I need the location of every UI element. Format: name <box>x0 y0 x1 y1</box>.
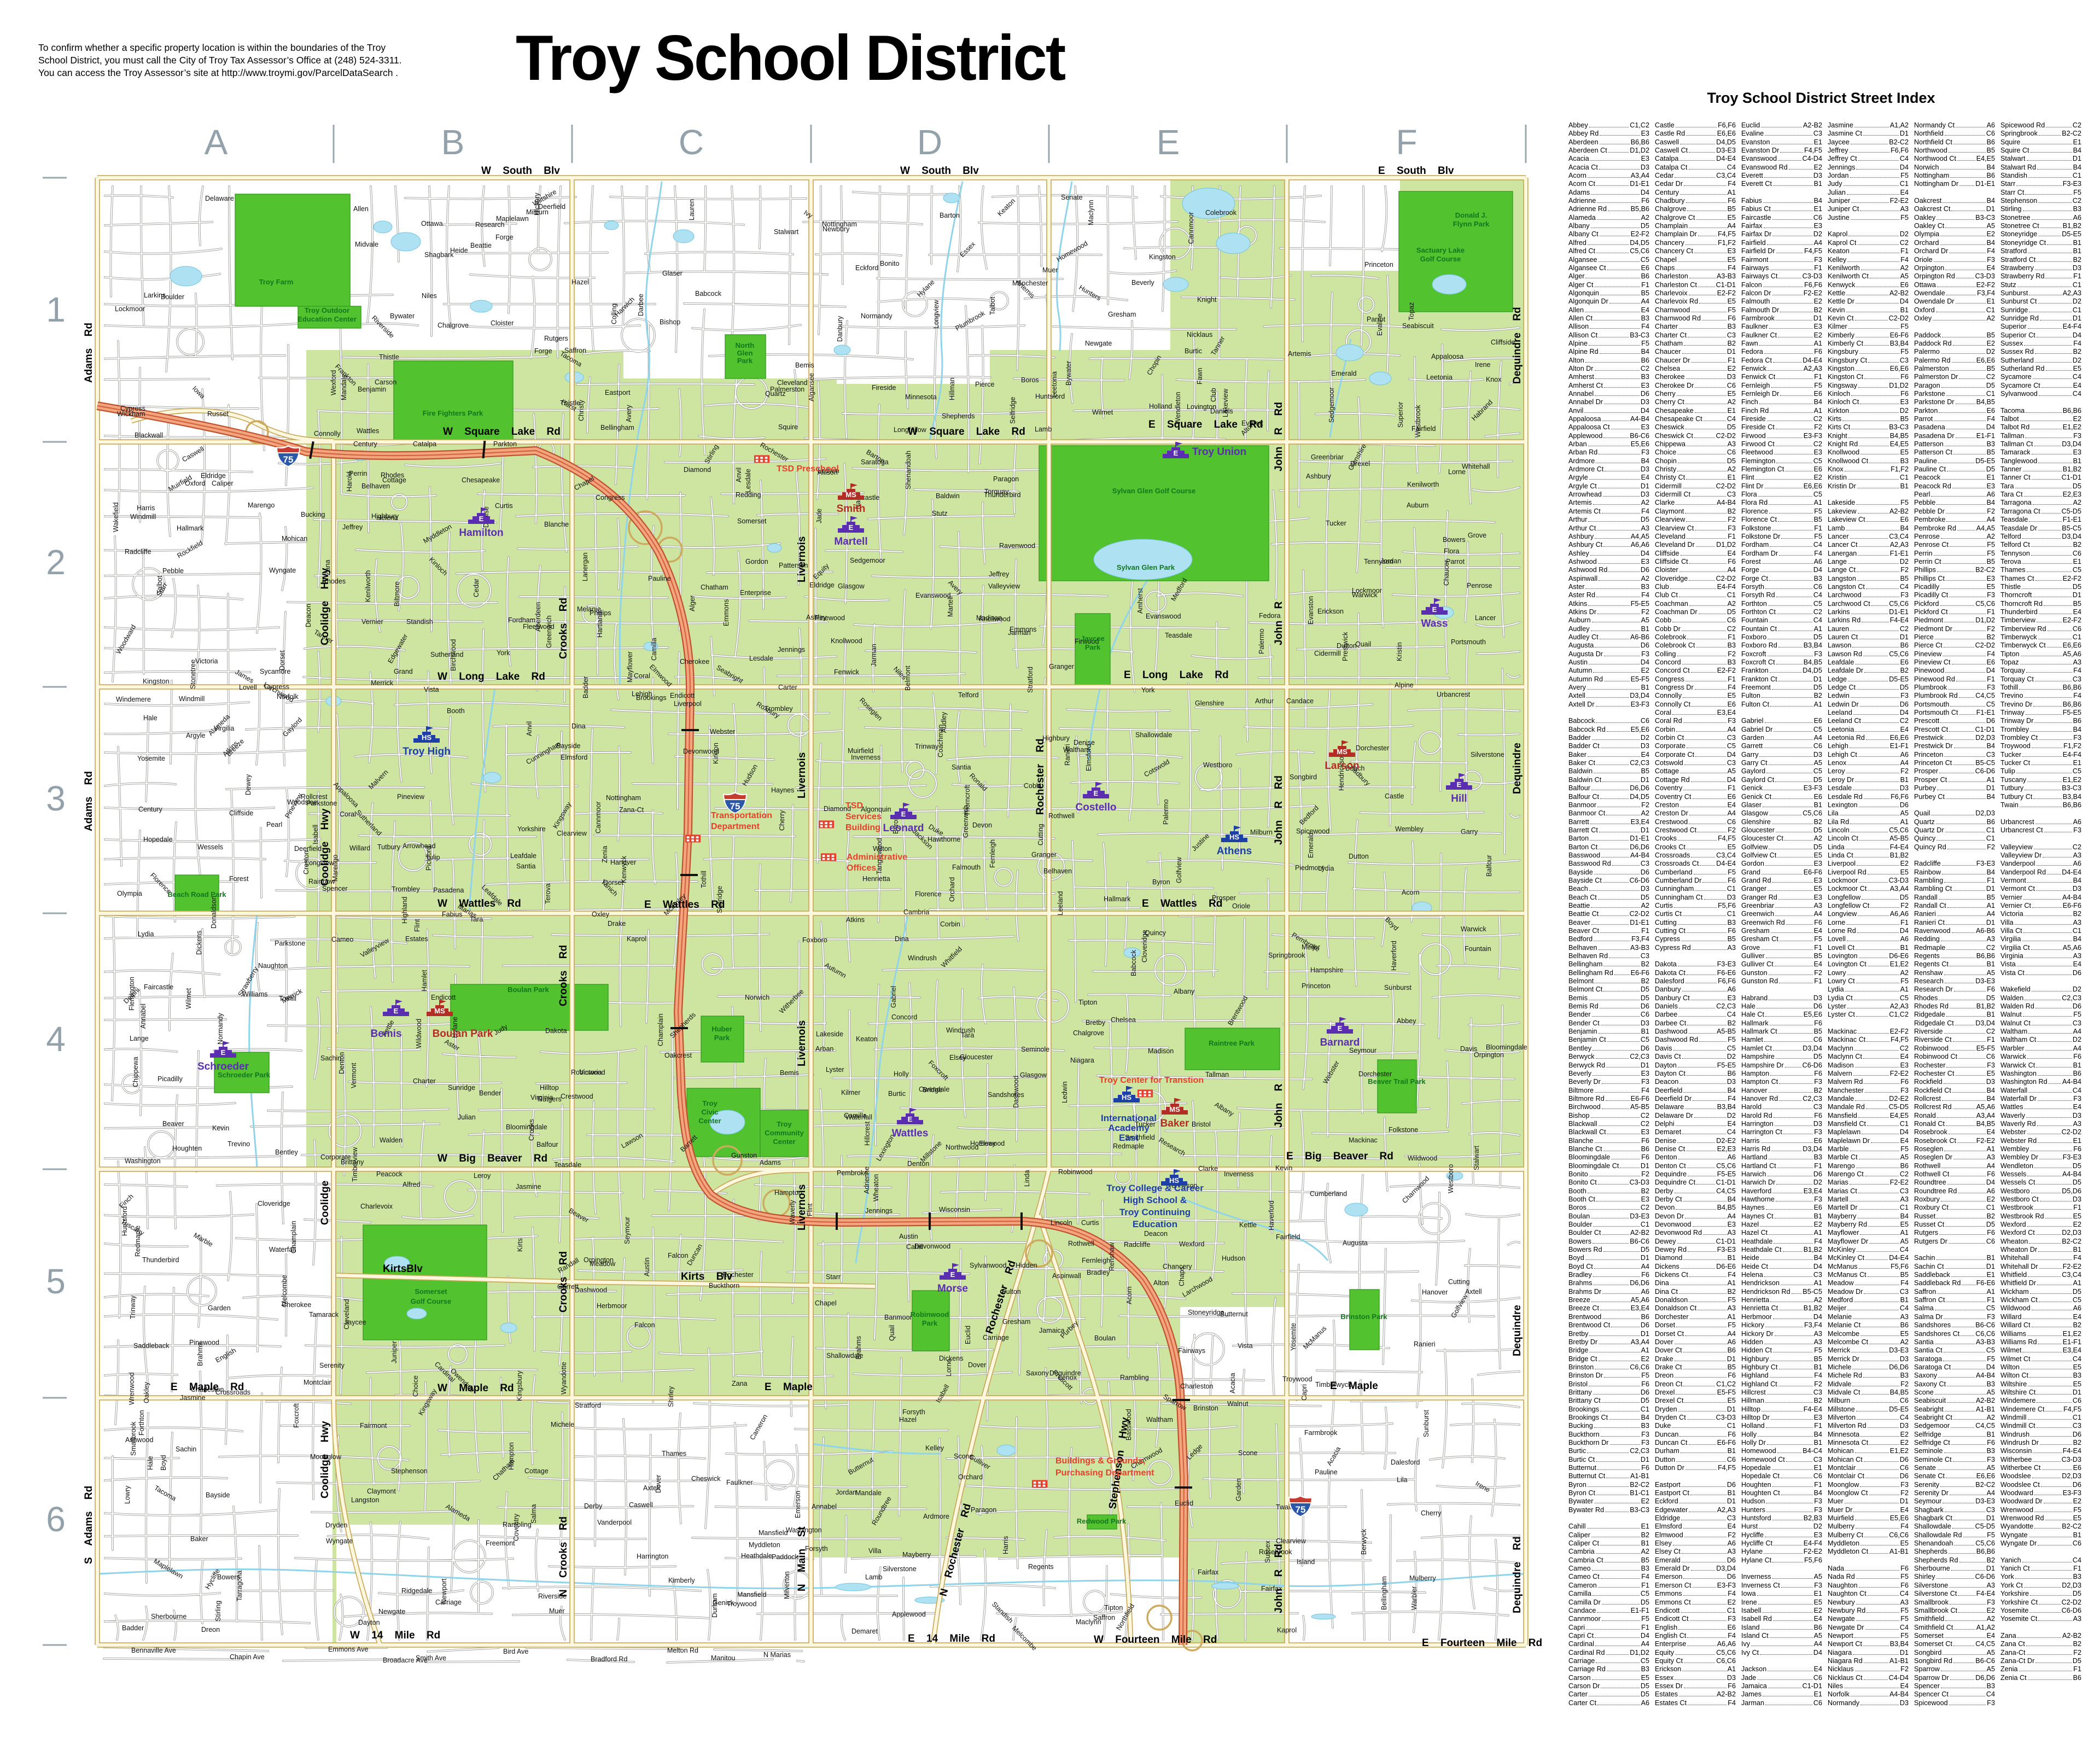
svg-text:Gresham: Gresham <box>1108 311 1136 318</box>
svg-text:Emmons: Emmons <box>1010 626 1036 633</box>
svg-text:Marengo: Marengo <box>248 501 275 509</box>
svg-text:Zana: Zana <box>732 1380 748 1387</box>
svg-text:Mansfield: Mansfield <box>737 1591 767 1599</box>
svg-text:Seminole: Seminole <box>1021 1046 1049 1053</box>
svg-text:Chapel: Chapel <box>815 1299 837 1307</box>
svg-text:E Long Lake Rd: E Long Lake Rd <box>1124 669 1229 681</box>
svg-text:Boyd: Boyd <box>160 1455 167 1471</box>
svg-text:High School &: High School & <box>1123 1195 1187 1205</box>
svg-text:Jordan: Jordan <box>836 1489 856 1496</box>
svg-text:Cannmoor: Cannmoor <box>594 802 602 833</box>
svg-text:Williams: Williams <box>242 990 268 998</box>
svg-text:Prestwick: Prestwick <box>1341 632 1349 661</box>
svg-text:Bellingham: Bellingham <box>1380 1576 1388 1610</box>
svg-text:Tara: Tara <box>470 915 483 923</box>
svg-text:Paddock: Paddock <box>772 1553 798 1561</box>
svg-text:Coral: Coral <box>634 672 650 680</box>
svg-text:Hudson: Hudson <box>1222 1255 1245 1262</box>
svg-text:Falmouth: Falmouth <box>952 864 981 871</box>
svg-text:Redmaple: Redmaple <box>1113 1142 1144 1150</box>
svg-text:Buckthorn: Buckthorn <box>709 1282 739 1290</box>
svg-text:Concord: Concord <box>891 1013 917 1021</box>
svg-text:Cumberland: Cumberland <box>1310 1190 1347 1198</box>
svg-text:Lesdale: Lesdale <box>749 655 773 662</box>
svg-text:W Fourteen Mile Rd: W Fourteen Mile Rd <box>1094 1634 1217 1646</box>
svg-text:Windmill: Windmill <box>130 513 156 521</box>
svg-text:Lila: Lila <box>1397 1476 1408 1484</box>
svg-text:Harris: Harris <box>1002 1536 1010 1554</box>
svg-text:Warbler: Warbler <box>1410 1586 1418 1610</box>
svg-text:Lovington: Lovington <box>1187 403 1216 411</box>
svg-text:W Big Beaver Rd: W Big Beaver Rd <box>437 1153 547 1164</box>
svg-text:Chancery: Chancery <box>1163 1263 1192 1270</box>
svg-text:D: D <box>917 122 942 162</box>
svg-text:Sussex: Sussex <box>1264 1540 1271 1563</box>
svg-text:Robinwood: Robinwood <box>1058 1168 1093 1176</box>
svg-text:Jarman: Jarman <box>870 644 878 667</box>
svg-text:Chesapeake: Chesapeake <box>462 476 500 484</box>
svg-text:Century: Century <box>353 440 378 448</box>
svg-text:Hopedale: Hopedale <box>143 836 173 843</box>
svg-text:Jaycee: Jaycee <box>1081 634 1104 643</box>
svg-text:Costello: Costello <box>1076 802 1117 813</box>
svg-text:Longview: Longview <box>932 299 940 329</box>
svg-text:Webster: Webster <box>710 728 735 736</box>
svg-text:Dover: Dover <box>968 1361 986 1369</box>
svg-text:Springbrook: Springbrook <box>1268 952 1305 959</box>
svg-text:Villa: Villa <box>868 1547 881 1555</box>
svg-text:W Square Lake Rd: W Square Lake Rd <box>443 426 561 437</box>
svg-text:Jade: Jade <box>815 509 823 523</box>
svg-text:Lauren: Lauren <box>688 199 696 220</box>
svg-text:Dover: Dover <box>655 1475 662 1493</box>
svg-text:F: F <box>1396 122 1417 162</box>
svg-text:Walnut: Walnut <box>1227 1400 1249 1408</box>
svg-text:Annabel: Annabel <box>139 1004 147 1029</box>
svg-text:Clearview: Clearview <box>557 830 587 837</box>
svg-text:Freemont: Freemont <box>486 1539 515 1547</box>
svg-text:MS: MS <box>434 1007 445 1015</box>
svg-text:Hidden: Hidden <box>1016 1262 1037 1269</box>
svg-text:Cherry: Cherry <box>1421 1509 1442 1517</box>
svg-text:Wyandotte: Wyandotte <box>560 1362 568 1395</box>
svg-text:Somerset: Somerset <box>737 517 767 525</box>
svg-text:Martell: Martell <box>834 536 867 547</box>
svg-text:HS: HS <box>422 733 431 742</box>
svg-text:Genick: Genick <box>713 1599 734 1607</box>
svg-text:Knight: Knight <box>1197 296 1217 304</box>
svg-text:Drexel: Drexel <box>1350 460 1370 468</box>
svg-text:Walden: Walden <box>380 1136 402 1144</box>
svg-text:Warwick: Warwick <box>1461 925 1487 933</box>
svg-text:Juniper: Juniper <box>390 1341 398 1363</box>
svg-text:Milburn: Milburn <box>1250 829 1273 836</box>
svg-text:Newgate: Newgate <box>378 1608 405 1615</box>
svg-text:Dina: Dina <box>571 722 586 730</box>
svg-text:MS: MS <box>1169 1105 1180 1113</box>
svg-text:Melanie: Melanie <box>577 605 601 613</box>
svg-text:Rothwell: Rothwell <box>1048 812 1075 820</box>
svg-text:Gunston: Gunston <box>731 1152 757 1159</box>
svg-text:Wilton: Wilton <box>873 845 892 853</box>
svg-text:Ottawa: Ottawa <box>421 220 443 227</box>
svg-text:Burtic: Burtic <box>1185 347 1202 355</box>
svg-text:Ashbury: Ashbury <box>1306 472 1332 480</box>
svg-text:Chapin Ave: Chapin Ave <box>230 1653 265 1661</box>
svg-text:Boros: Boros <box>1021 376 1039 384</box>
svg-text:Grove: Grove <box>1468 532 1486 539</box>
svg-text:E: E <box>1432 605 1437 614</box>
svg-text:W South Blv: W South Blv <box>900 165 979 177</box>
svg-text:Beaver: Beaver <box>162 1120 184 1128</box>
svg-text:Administrative: Administrative <box>847 853 907 862</box>
svg-text:Diamond: Diamond <box>684 466 711 474</box>
svg-text:Gresham: Gresham <box>1002 1318 1030 1326</box>
svg-text:Cherry: Cherry <box>778 810 786 831</box>
svg-text:Mandale: Mandale <box>855 1489 882 1497</box>
svg-text:Garden: Garden <box>208 1304 231 1312</box>
svg-text:Victoria: Victoria <box>579 1069 602 1076</box>
svg-text:Trombley: Trombley <box>765 705 793 713</box>
svg-text:Carson: Carson <box>375 378 396 386</box>
svg-text:Aberdeen: Aberdeen <box>534 602 542 632</box>
svg-text:Kelley: Kelley <box>925 1444 944 1452</box>
svg-text:Mansfield: Mansfield <box>759 1529 788 1537</box>
svg-text:Sandshores: Sandshores <box>988 1091 1024 1099</box>
svg-text:Eastport: Eastport <box>605 389 631 396</box>
svg-text:Beattie: Beattie <box>470 242 492 249</box>
svg-text:Corbin: Corbin <box>940 920 960 928</box>
svg-text:Ardmore: Ardmore <box>923 1513 949 1520</box>
svg-text:Forthton: Forthton <box>138 1410 145 1436</box>
svg-text:Keaton: Keaton <box>856 1035 878 1043</box>
svg-text:Jennings: Jennings <box>778 646 805 654</box>
svg-text:Carter: Carter <box>778 684 797 691</box>
svg-text:Claymont: Claymont <box>367 1487 396 1495</box>
svg-text:Regents: Regents <box>1028 1563 1054 1571</box>
svg-text:Dayton: Dayton <box>358 1619 380 1626</box>
svg-text:Cleveland: Cleveland <box>777 379 808 387</box>
svg-text:Arrowhead: Arrowhead <box>402 842 435 850</box>
svg-text:Waverly: Waverly <box>789 1200 796 1224</box>
svg-text:Leafdale: Leafdale <box>510 852 536 860</box>
svg-text:Dickens: Dickens <box>195 931 203 955</box>
svg-text:Elsey: Elsey <box>979 1140 996 1147</box>
svg-text:Rambling: Rambling <box>1120 1374 1149 1381</box>
svg-text:Charter: Charter <box>413 1077 436 1085</box>
svg-text:Troy: Troy <box>702 1099 717 1107</box>
svg-text:Baker: Baker <box>190 1535 208 1543</box>
svg-text:Thistle: Thistle <box>379 353 399 361</box>
svg-text:Tutbury: Tutbury <box>377 843 401 851</box>
svg-text:Stutz: Stutz <box>932 510 948 517</box>
svg-text:Cypress: Cypress <box>120 405 145 412</box>
svg-text:Thunderbird: Thunderbird <box>142 1256 179 1264</box>
svg-text:Eldridge: Eldridge <box>201 472 226 480</box>
svg-text:Adams: Adams <box>760 1159 781 1166</box>
svg-text:Evanswood: Evanswood <box>1146 612 1181 620</box>
svg-text:Troy High: Troy High <box>402 746 451 757</box>
svg-text:Jeffrey: Jeffrey <box>989 570 1010 578</box>
svg-text:Elmsford: Elmsford <box>561 754 587 761</box>
svg-text:Ledwin: Ledwin <box>1061 1081 1069 1103</box>
svg-text:Center: Center <box>698 1117 721 1125</box>
svg-text:Orchard: Orchard <box>958 1473 983 1481</box>
svg-text:Camilla: Camilla <box>844 1112 867 1119</box>
svg-text:Songbird: Songbird <box>1290 773 1317 781</box>
svg-text:Evaline: Evaline <box>1376 313 1384 336</box>
svg-text:Greenwich: Greenwich <box>545 615 553 648</box>
svg-text:Wilmet: Wilmet <box>185 988 192 1009</box>
svg-text:Jamaica: Jamaica <box>1039 1327 1065 1334</box>
svg-text:Coolidge Hwy: Coolidge Hwy <box>319 808 331 886</box>
svg-text:Madison: Madison <box>1148 1047 1174 1055</box>
svg-text:Nottingham: Nottingham <box>606 794 641 802</box>
svg-text:Forge: Forge <box>534 347 552 355</box>
svg-text:E: E <box>901 810 906 818</box>
svg-text:Cherokee: Cherokee <box>282 1301 311 1309</box>
svg-text:Valleyview: Valleyview <box>988 582 1020 590</box>
svg-text:Eldridge: Eldridge <box>809 581 835 589</box>
svg-text:Senate: Senate <box>1061 194 1083 201</box>
svg-text:Garden: Garden <box>1235 1478 1242 1501</box>
svg-text:Jeffrey: Jeffrey <box>342 523 363 531</box>
svg-text:Hartland: Hartland <box>596 612 604 638</box>
svg-text:Emmons Ave: Emmons Ave <box>328 1646 368 1653</box>
svg-text:Terova: Terova <box>544 883 552 904</box>
svg-text:Lesdale: Lesdale <box>744 469 752 493</box>
svg-text:Sedgemoor: Sedgemoor <box>850 557 885 564</box>
svg-text:Maplelawn: Maplelawn <box>496 215 529 223</box>
svg-text:Larson: Larson <box>1325 760 1359 772</box>
svg-text:1: 1 <box>46 290 66 329</box>
svg-text:Niles: Niles <box>422 292 437 300</box>
svg-text:E Maple Rd: E Maple Rd <box>171 1381 244 1393</box>
svg-text:E: E <box>1338 1024 1343 1032</box>
svg-text:Kaprol: Kaprol <box>627 935 646 943</box>
svg-text:Saxony: Saxony <box>1026 1369 1049 1377</box>
svg-text:Dorset: Dorset <box>278 650 286 670</box>
svg-text:MS: MS <box>845 491 856 499</box>
svg-text:Bretby: Bretby <box>1086 1019 1106 1026</box>
svg-text:Jasmine: Jasmine <box>180 1394 206 1402</box>
svg-text:Gordon: Gordon <box>745 558 768 565</box>
svg-text:Trombley: Trombley <box>392 885 420 893</box>
svg-text:Lowry: Lowry <box>124 1485 131 1504</box>
svg-text:Donaldson: Donaldson <box>210 896 218 929</box>
svg-text:Forest: Forest <box>229 875 249 883</box>
svg-text:Inverness: Inverness <box>1224 1170 1253 1178</box>
svg-text:Glen: Glen <box>737 349 753 357</box>
svg-text:Albany: Albany <box>1174 988 1195 995</box>
svg-text:Erickson: Erickson <box>1317 608 1344 615</box>
svg-text:Anvil: Anvil <box>735 468 743 482</box>
svg-text:Belhaven: Belhaven <box>1043 867 1072 875</box>
svg-text:Sachin: Sachin <box>176 1445 196 1453</box>
svg-text:Badder: Badder <box>122 1624 144 1632</box>
svg-text:Chalgrove: Chalgrove <box>437 322 469 329</box>
svg-text:Leetonia: Leetonia <box>1051 371 1058 398</box>
svg-text:Euclid: Euclid <box>964 1326 972 1344</box>
svg-text:Lange: Lange <box>130 1035 149 1042</box>
svg-text:W Long Lake Rd: W Long Lake Rd <box>437 671 545 682</box>
svg-text:East: East <box>1119 1133 1139 1143</box>
svg-text:Squire: Squire <box>778 423 798 431</box>
svg-text:Coral: Coral <box>340 810 356 818</box>
svg-text:Forsyth: Forsyth <box>805 1545 828 1553</box>
svg-text:Hickory: Hickory <box>533 192 541 215</box>
svg-text:Isabell: Isabell <box>312 825 319 844</box>
svg-text:Quail: Quail <box>1355 640 1371 648</box>
svg-text:Stonetree: Stonetree <box>189 660 197 689</box>
svg-text:Sachin: Sachin <box>320 1054 341 1062</box>
svg-text:Windrush: Windrush <box>908 954 937 962</box>
svg-text:Westboro: Westboro <box>1203 761 1232 769</box>
svg-text:Kirts Blv: Kirts Blv <box>681 1271 733 1282</box>
svg-text:Timberview: Timberview <box>351 1147 359 1182</box>
svg-text:Chippewa: Chippewa <box>132 1057 139 1087</box>
svg-text:Pasadena: Pasadena <box>433 886 464 894</box>
svg-text:Normandy: Normandy <box>861 312 892 320</box>
svg-text:Dreon: Dreon <box>201 1626 220 1634</box>
svg-text:Nicklaus: Nicklaus <box>1187 331 1212 339</box>
svg-text:Park: Park <box>922 1319 938 1327</box>
svg-text:Portsmouth: Portsmouth <box>1451 638 1486 646</box>
svg-text:Ranieri: Ranieri <box>1064 744 1071 766</box>
svg-text:E: E <box>394 1007 399 1015</box>
svg-text:E Wattles Rd: E Wattles Rd <box>644 899 725 911</box>
svg-text:Wrenwood: Wrenwood <box>128 1372 136 1405</box>
svg-text:Donald J.: Donald J. <box>1455 211 1487 219</box>
svg-text:Hilltop: Hilltop <box>540 1084 559 1092</box>
svg-text:Montclair: Montclair <box>304 1379 331 1386</box>
svg-text:Pearl: Pearl <box>266 821 282 829</box>
svg-text:Muer: Muer <box>1042 266 1058 274</box>
svg-text:Falcon: Falcon <box>634 1321 655 1329</box>
svg-text:Trevino: Trevino <box>227 1140 250 1148</box>
svg-text:Muer: Muer <box>549 1607 564 1615</box>
svg-text:Fountain: Fountain <box>1465 945 1491 953</box>
svg-text:Hale: Hale <box>147 1456 154 1470</box>
svg-text:Sylvan Glen Golf Course: Sylvan Glen Golf Course <box>1112 487 1195 495</box>
svg-text:Bennaville Ave: Bennaville Ave <box>131 1647 176 1654</box>
svg-text:Mayberry: Mayberry <box>902 1551 931 1559</box>
svg-text:Parrot: Parrot <box>1446 558 1465 565</box>
svg-text:Knox: Knox <box>1486 376 1502 383</box>
svg-text:Foxboro: Foxboro <box>802 936 827 944</box>
svg-text:Wakefield: Wakefield <box>112 503 120 532</box>
svg-text:Ravenwood: Ravenwood <box>999 542 1035 550</box>
svg-text:Sunridge: Sunridge <box>448 1084 475 1092</box>
svg-text:Balfour: Balfour <box>536 1141 558 1148</box>
svg-text:Alger: Alger <box>689 596 696 611</box>
svg-text:Dorchester: Dorchester <box>1358 1070 1392 1078</box>
svg-text:Center: Center <box>773 1137 795 1146</box>
svg-text:Haverford: Haverford <box>1390 941 1398 971</box>
svg-text:Troywood: Troywood <box>1282 1375 1312 1383</box>
svg-text:Fawn: Fawn <box>1196 367 1204 384</box>
svg-text:Shirley: Shirley <box>667 1386 675 1407</box>
svg-text:TSD: TSD <box>845 801 863 810</box>
svg-text:Foxcroft: Foxcroft <box>293 1403 300 1428</box>
svg-text:Crooks Rd: Crooks Rd <box>558 598 569 659</box>
svg-text:Teasdale: Teasdale <box>1165 632 1192 639</box>
svg-text:Corporate: Corporate <box>320 1153 351 1161</box>
svg-text:Academy: Academy <box>1108 1123 1150 1133</box>
svg-text:Bender: Bender <box>479 1089 501 1097</box>
svg-text:Austin: Austin <box>643 1257 651 1276</box>
svg-text:Emmons: Emmons <box>722 599 730 626</box>
svg-text:E: E <box>1157 122 1180 162</box>
svg-text:North: North <box>736 341 755 349</box>
svg-text:Golf Course: Golf Course <box>1420 255 1461 263</box>
svg-text:Serenity: Serenity <box>319 1362 345 1369</box>
svg-text:Ashley: Ashley <box>806 614 827 621</box>
svg-text:Pauline: Pauline <box>1315 1468 1338 1476</box>
svg-text:Dalesford: Dalesford <box>1391 1459 1420 1466</box>
svg-text:Crooks Rd: Crooks Rd <box>558 945 569 1006</box>
svg-text:Pauline: Pauline <box>648 575 671 582</box>
svg-text:Department: Department <box>711 822 760 831</box>
svg-text:Sylvan Glen Park: Sylvan Glen Park <box>1117 563 1175 571</box>
svg-text:Bonito: Bonito <box>880 260 899 267</box>
svg-text:Alton: Alton <box>1153 1279 1169 1287</box>
svg-text:Boulder: Boulder <box>161 293 184 301</box>
svg-text:Livernois: Livernois <box>796 536 808 582</box>
svg-text:Dickens: Dickens <box>939 1355 963 1362</box>
svg-text:Devonwood: Devonwood <box>914 1242 950 1250</box>
svg-text:Darbee: Darbee <box>637 294 645 316</box>
svg-text:Glasgow: Glasgow <box>838 582 865 590</box>
svg-text:Emerald: Emerald <box>1331 370 1357 377</box>
svg-text:Huntsford: Huntsford <box>121 1206 129 1236</box>
svg-text:Chalgrove: Chalgrove <box>1073 1029 1104 1037</box>
svg-text:Westboro: Westboro <box>1447 1164 1455 1193</box>
svg-text:Lamb: Lamb <box>1035 425 1052 433</box>
svg-text:Meijer: Meijer <box>1302 943 1320 951</box>
svg-text:Sunburst: Sunburst <box>1422 1409 1430 1437</box>
svg-text:E: E <box>1174 449 1179 457</box>
svg-text:Drake: Drake <box>608 920 626 927</box>
svg-text:Melton Rd: Melton Rd <box>667 1647 698 1654</box>
svg-text:Dewey: Dewey <box>244 774 252 795</box>
svg-text:Club: Club <box>1210 388 1217 402</box>
svg-text:Blackwall: Blackwall <box>135 431 163 439</box>
svg-text:Eckford: Eckford <box>855 264 878 272</box>
svg-text:Brinston Park: Brinston Park <box>1340 1312 1387 1321</box>
svg-text:Hazel: Hazel <box>899 1416 917 1424</box>
svg-text:Manitou: Manitou <box>711 1654 736 1662</box>
svg-text:Audley: Audley <box>940 711 948 733</box>
svg-text:Pebble: Pebble <box>162 567 184 575</box>
svg-text:Tothill: Tothill <box>700 871 708 888</box>
svg-text:Barnard: Barnard <box>1320 1037 1360 1048</box>
svg-text:Charlevoix: Charlevoix <box>360 1203 393 1210</box>
svg-text:Catalpa: Catalpa <box>413 440 436 448</box>
svg-text:Park: Park <box>737 357 753 365</box>
svg-text:Harold: Harold <box>346 471 353 492</box>
svg-text:Kingsbury: Kingsbury <box>516 1370 523 1401</box>
svg-text:Troy Outdoor: Troy Outdoor <box>305 306 349 314</box>
svg-text:Cameo: Cameo <box>331 936 353 943</box>
svg-text:Mohican: Mohican <box>282 535 307 542</box>
svg-text:Madison: Madison <box>976 614 1002 622</box>
svg-text:Herbmoor: Herbmoor <box>597 1302 627 1310</box>
svg-text:Offices: Offices <box>847 864 876 873</box>
svg-text:C: C <box>679 122 704 162</box>
svg-text:Stalwart: Stalwart <box>774 228 799 236</box>
svg-text:Schroeder: Schroeder <box>197 1061 249 1072</box>
